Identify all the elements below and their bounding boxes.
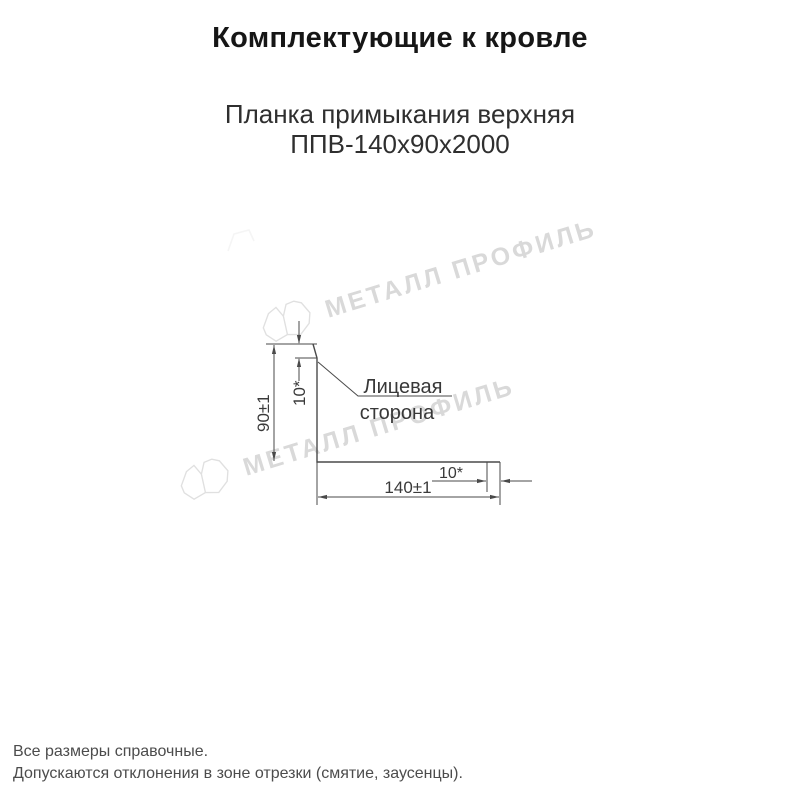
dim-top-flange-label: 10*: [290, 380, 309, 406]
dim-end-flange-label: 10*: [439, 465, 463, 482]
footnote-line-1: Все размеры справочные.: [13, 741, 463, 763]
footnotes: Все размеры справочные. Допускаются откл…: [13, 741, 463, 785]
dim-height-label: 90±1: [254, 394, 273, 432]
face-side-label-line1: Лицевая: [363, 376, 442, 398]
dim-width-label: 140±1: [384, 478, 431, 497]
footnote-line-2: Допускаются отклонения в зоне отрезки (с…: [13, 763, 463, 785]
profile-dimension-drawing: 90±1 10* 140±1 10* Лицевая сторона: [0, 0, 800, 800]
face-side-label-line2: сторона: [360, 402, 435, 424]
